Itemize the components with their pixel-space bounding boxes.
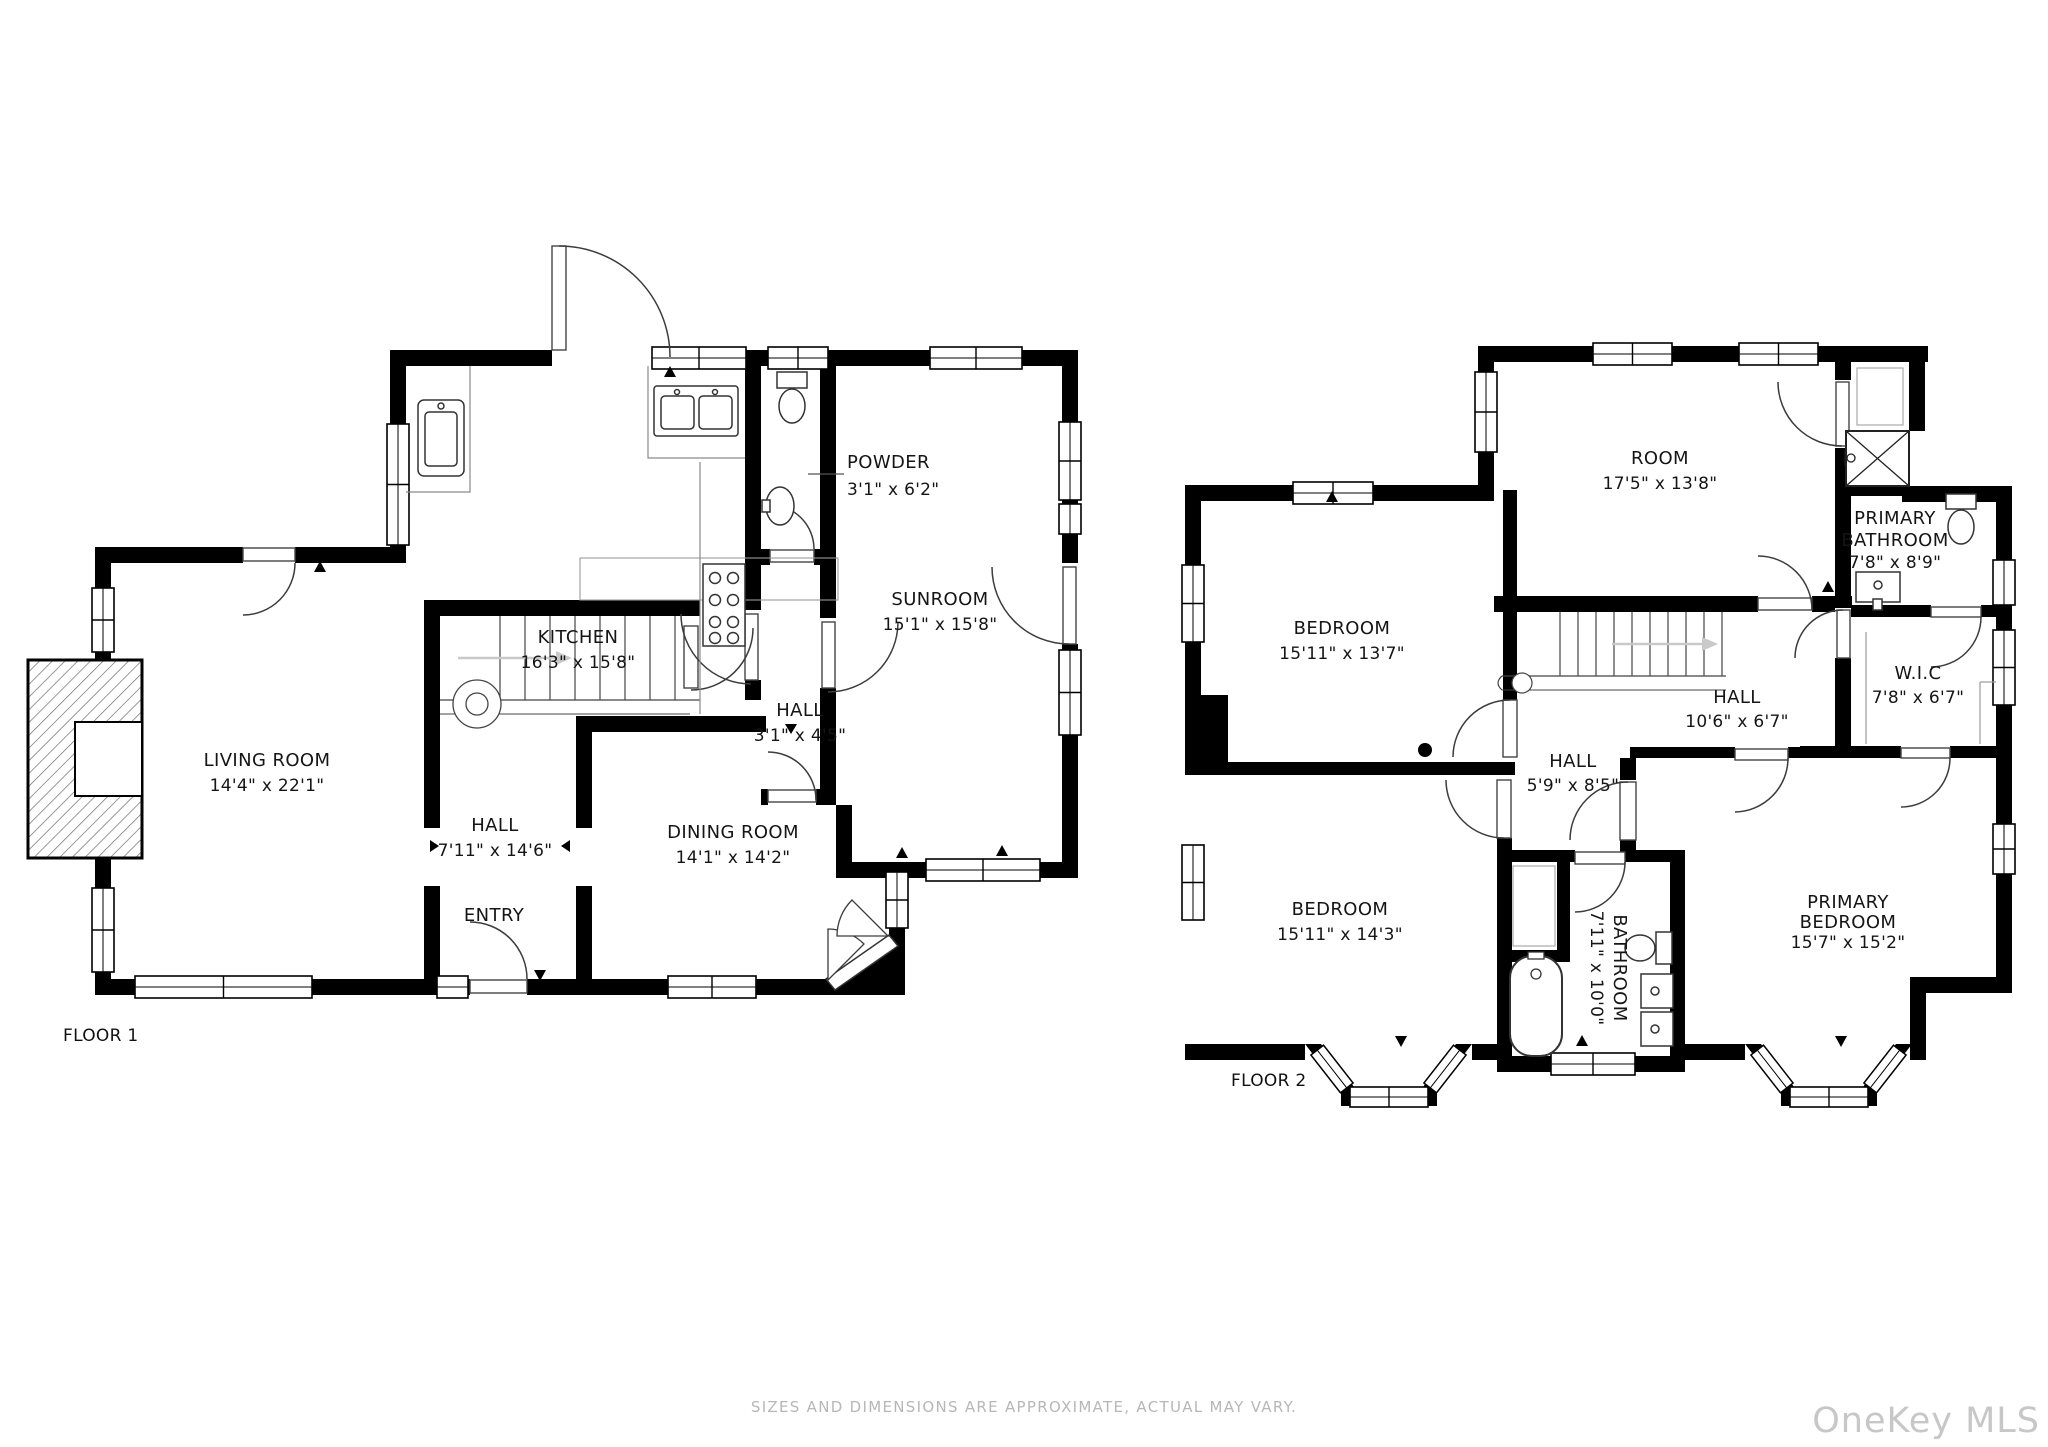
window-icon [437, 976, 468, 998]
powder-toilet-icon [777, 372, 807, 423]
door-arc [1778, 382, 1842, 446]
room-label-bathroom: BATHROOM [1609, 914, 1630, 1021]
room-dims-dining: 14'1" x 14'2" [676, 848, 791, 868]
window-icon [1059, 422, 1081, 500]
window-icon [92, 888, 114, 972]
stairs-layer [440, 558, 1726, 728]
room-label-primary-bedroom-2: BEDROOM [1800, 912, 1897, 933]
wall-segment [1620, 758, 1636, 780]
wall-segment [1950, 746, 2012, 758]
watermark-text: OneKey MLS [1812, 1401, 2040, 1441]
window-icon [92, 588, 114, 652]
room-dims-powder: 3'1" x 6'2" [847, 480, 939, 500]
room-label-primary-bathroom-1: PRIMARY [1854, 508, 1936, 529]
door-arc [243, 563, 295, 615]
window-icon [1751, 1045, 1793, 1093]
room-dims-hall-lower: 5'9" x 8'5" [1527, 776, 1619, 796]
dimension-arrow [1576, 1035, 1588, 1046]
window-icon [1424, 1045, 1466, 1093]
room-label-primary-bathroom-2: BATHROOM [1841, 530, 1948, 551]
powder-sink-icon [762, 487, 794, 525]
floor2-label: FLOOR 2 [1231, 1071, 1307, 1091]
room-label-hall: HALL [471, 815, 519, 836]
kitchen-sink-icon [418, 400, 464, 476]
window-icon [930, 347, 1022, 369]
window-icon [1059, 650, 1081, 735]
wall-segment [1981, 605, 2012, 617]
room-dims-bedroom-upper: 15'11" x 13'7" [1279, 644, 1405, 664]
window-icon [1311, 1045, 1353, 1093]
room-label-primary-bedroom-1: PRIMARY [1807, 892, 1889, 913]
window-icon [1739, 343, 1818, 365]
wall-segment [1685, 1044, 1745, 1060]
dimension-arrow [1835, 1036, 1847, 1047]
room-dims-living-room: 14'4" x 22'1" [210, 776, 325, 796]
room-label-dining: DINING ROOM [667, 822, 799, 843]
wall-segment [1503, 490, 1517, 700]
room-label-hall-upper: HALL [1713, 687, 1761, 708]
window-icon [1350, 1087, 1428, 1107]
pb-toilet-icon [1946, 494, 1976, 544]
door-gaps-layer [243, 348, 1851, 997]
room-label-hall-small: HALL [776, 700, 824, 721]
wall-segment [592, 716, 766, 732]
door-leaf [1575, 852, 1625, 864]
door-leaf [1931, 607, 1981, 617]
room-dims-room: 17'5" x 13'8" [1603, 474, 1718, 494]
window-icon [668, 976, 756, 998]
window-icon [135, 976, 312, 998]
room-dims-hall-upper: 10'6" x 6'7" [1685, 712, 1789, 732]
room-dims-primary-bedroom: 15'7" x 15'2" [1791, 933, 1906, 953]
window-icon [886, 872, 908, 928]
door-leaf [768, 790, 816, 802]
wall-segment [1557, 862, 1570, 950]
room-dims-primary-bathroom: 7'8" x 8'9" [1849, 553, 1941, 573]
window-icon [1059, 504, 1081, 534]
wall-segment [1835, 658, 1851, 758]
wall-segment [1478, 346, 1928, 362]
door-arc [1901, 758, 1950, 807]
door-arc [1453, 700, 1510, 757]
room-label-powder: POWDER [847, 452, 930, 473]
room-dims-kitchen: 16'3" x 15'8" [521, 653, 636, 673]
door-arc [1446, 780, 1504, 838]
wall-segment [1909, 362, 1925, 431]
window-icon [768, 347, 828, 369]
room-label-bedroom-lower: BEDROOM [1292, 899, 1389, 920]
wall-segment [1472, 1044, 1497, 1060]
door-arc [837, 900, 888, 936]
wall-segment [424, 600, 440, 828]
door-arc [1931, 617, 1981, 667]
floorplan-svg: LIVING ROOM 14'4" x 22'1" KITCHEN 16'3" … [0, 0, 2048, 1447]
floor1-label: FLOOR 1 [63, 1026, 139, 1046]
door-arc [992, 567, 1069, 644]
window-icon [1993, 560, 2015, 605]
window-icon [387, 424, 409, 545]
dimension-arrow [996, 845, 1008, 856]
door-leaf [1901, 748, 1950, 758]
room-closet [1857, 368, 1903, 425]
chimney-dot [1418, 743, 1432, 757]
disclaimer-text: SIZES AND DIMENSIONS ARE APPROXIMATE, AC… [751, 1398, 1297, 1416]
room-label-bedroom-upper: BEDROOM [1294, 618, 1391, 639]
room-label-wic: W.I.C [1894, 663, 1941, 684]
wall-segment [424, 600, 700, 616]
door-leaf [1063, 567, 1076, 644]
window-icon [1993, 630, 2015, 705]
window-icon [1790, 1087, 1868, 1107]
door-leaf [1735, 749, 1788, 760]
door-leaf [243, 548, 295, 561]
bathroom-toilet-icon [1625, 932, 1672, 964]
wall-segment [1835, 362, 1851, 380]
window-icon [926, 859, 1040, 881]
room-label-kitchen: KITCHEN [538, 627, 619, 648]
room-label-sunroom: SUNROOM [891, 589, 988, 610]
wall-segment [576, 886, 592, 995]
dimension-arrow [896, 847, 908, 858]
room-dims-sunroom: 15'1" x 15'8" [883, 615, 998, 635]
staircase-floor2 [1498, 612, 1726, 693]
window-icon [1864, 1045, 1906, 1093]
room-label-hall-lower: HALL [1549, 751, 1597, 772]
door-leaf [822, 622, 835, 688]
floor-plan-image: LIVING ROOM 14'4" x 22'1" KITCHEN 16'3" … [0, 0, 2048, 1447]
shower-icon [1845, 431, 1909, 486]
room-dims-wic: 7'8" x 6'7" [1872, 688, 1964, 708]
door-leaf [470, 980, 527, 993]
wall-segment [1185, 762, 1515, 775]
wall-segment [1630, 747, 1735, 758]
room-dims-hall: 7'11" x 14'6" [438, 841, 553, 861]
wall-segment [1512, 850, 1575, 862]
door-leaf [1620, 782, 1636, 840]
room-label-entry: ENTRY [464, 905, 525, 926]
door-leaf [1503, 700, 1517, 757]
window-icon [1593, 343, 1672, 365]
window-icon [1551, 1053, 1635, 1075]
room-dims-bathroom: 7'11" x 10'0" [1586, 911, 1606, 1026]
door-leaf [770, 550, 814, 562]
bathtub-icon [1510, 952, 1562, 1056]
door-leaf [552, 246, 566, 350]
door-leaf [1837, 610, 1850, 658]
wall-segment [1910, 985, 1926, 1060]
stove-icon [703, 564, 745, 646]
room-dims-hall-small: 3'1" x 4'5" [754, 726, 846, 746]
wall-segment [836, 805, 852, 878]
dimension-arrow [561, 840, 570, 852]
door-arc [559, 246, 670, 357]
door-arc [1735, 758, 1788, 812]
door-arc [470, 922, 527, 979]
fireplace-icon [28, 660, 142, 858]
dimension-arrow [1822, 581, 1834, 592]
wall-segment [1846, 486, 1909, 496]
door-leaf [1497, 780, 1511, 838]
wall-segment [1800, 746, 1901, 758]
window-icon [1182, 845, 1204, 920]
kitchen-double-sink-icon [654, 386, 738, 436]
pb-sink-icon [1856, 572, 1900, 610]
wall-segment [1185, 1044, 1305, 1060]
window-icon [652, 347, 746, 369]
bathroom-closet [1513, 866, 1555, 946]
window-icon [1993, 824, 2015, 874]
wall-segment [1494, 596, 1758, 612]
dimension-arrow [1395, 1036, 1407, 1047]
door-arc [1575, 862, 1625, 912]
door-leaf [1758, 598, 1812, 610]
wall-segment [1996, 486, 2012, 758]
bathroom-sinks-icon [1641, 974, 1673, 1046]
room-label-living-room: LIVING ROOM [204, 750, 331, 771]
door-leaf [745, 614, 758, 680]
window-icon [1182, 565, 1204, 642]
window-icon [1475, 372, 1497, 452]
room-label-room: ROOM [1631, 448, 1689, 469]
wall-segment [576, 716, 592, 828]
room-dims-bedroom-lower: 15'11" x 14'3" [1277, 925, 1403, 945]
